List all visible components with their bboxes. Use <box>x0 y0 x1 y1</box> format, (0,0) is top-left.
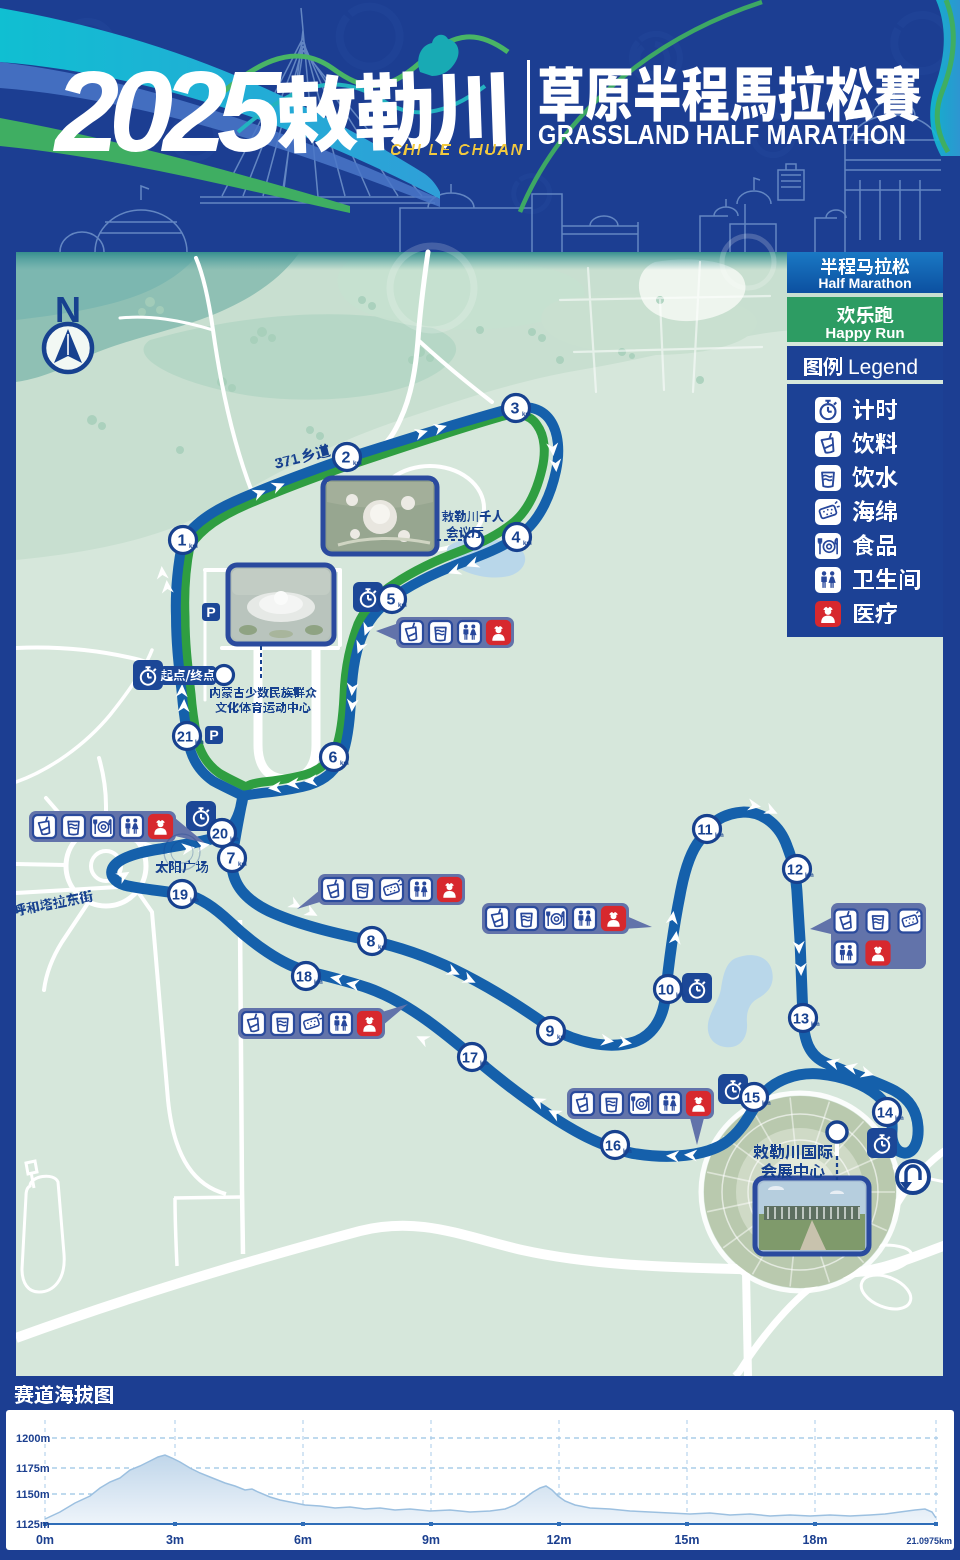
svg-text:2: 2 <box>342 450 351 467</box>
svg-text:km: km <box>895 1116 904 1122</box>
svg-text:km: km <box>522 412 531 418</box>
svg-text:6: 6 <box>329 750 338 767</box>
svg-text:18: 18 <box>296 970 312 986</box>
svg-text:km: km <box>623 1149 632 1155</box>
svg-text:8: 8 <box>367 934 376 951</box>
svg-text:km: km <box>230 837 239 843</box>
svg-text:Half Marathon: Half Marathon <box>818 275 911 291</box>
svg-text:15m: 15m <box>674 1533 699 1547</box>
svg-text:0m: 0m <box>36 1533 54 1547</box>
svg-text:P: P <box>206 604 215 620</box>
svg-text:21: 21 <box>177 730 193 746</box>
svg-text:18m: 18m <box>802 1533 827 1547</box>
svg-text:4: 4 <box>512 530 521 547</box>
svg-text:11: 11 <box>697 823 712 839</box>
svg-text:20: 20 <box>212 827 228 843</box>
svg-text:13: 13 <box>793 1012 809 1028</box>
svg-text:km: km <box>378 945 387 951</box>
svg-text:km: km <box>805 873 814 879</box>
svg-text:km: km <box>353 461 362 467</box>
svg-text:1200m: 1200m <box>16 1433 50 1445</box>
svg-text:14: 14 <box>877 1106 893 1122</box>
svg-text:12: 12 <box>787 863 803 879</box>
svg-text:km: km <box>189 544 198 550</box>
svg-text:km: km <box>811 1022 820 1028</box>
svg-text:km: km <box>238 862 247 868</box>
svg-text:9: 9 <box>546 1024 555 1041</box>
svg-text:15: 15 <box>744 1091 760 1107</box>
svg-text:km: km <box>762 1101 771 1107</box>
svg-text:12m: 12m <box>546 1533 571 1547</box>
svg-text:1: 1 <box>178 533 187 550</box>
svg-text:3m: 3m <box>166 1533 184 1547</box>
svg-text:10: 10 <box>658 983 674 999</box>
svg-text:km: km <box>314 980 323 986</box>
svg-text:3: 3 <box>511 401 520 418</box>
svg-text:16: 16 <box>605 1139 621 1155</box>
svg-text:km: km <box>195 740 204 746</box>
svg-text:km: km <box>676 993 685 999</box>
svg-text:km: km <box>480 1061 489 1067</box>
svg-text:km: km <box>715 833 724 839</box>
svg-text:1125m: 1125m <box>16 1519 50 1531</box>
svg-text:km: km <box>557 1035 566 1041</box>
svg-text:1150m: 1150m <box>16 1489 50 1501</box>
svg-text:km: km <box>340 761 349 767</box>
svg-text:19: 19 <box>172 888 188 904</box>
svg-text:km: km <box>190 898 199 904</box>
svg-text:km: km <box>398 603 407 609</box>
svg-text:Legend: Legend <box>848 356 918 379</box>
svg-text:21.0975km: 21.0975km <box>906 1536 952 1546</box>
svg-text:Happy Run: Happy Run <box>825 325 904 342</box>
svg-text:5: 5 <box>387 592 396 609</box>
svg-text:P: P <box>209 727 218 743</box>
svg-text:6m: 6m <box>294 1533 312 1547</box>
svg-text:17: 17 <box>462 1051 478 1067</box>
svg-text:7: 7 <box>227 851 236 868</box>
svg-text:9m: 9m <box>422 1533 440 1547</box>
svg-text:1175m: 1175m <box>16 1463 50 1475</box>
svg-text:km: km <box>523 541 532 547</box>
